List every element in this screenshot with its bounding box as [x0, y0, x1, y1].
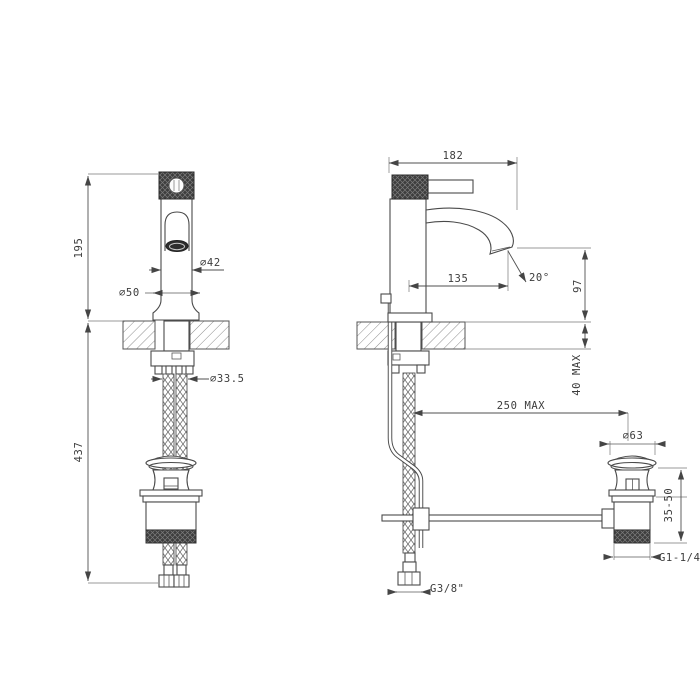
dim-height-above-deck: 195 [73, 238, 85, 259]
side-handle-lever [428, 180, 473, 193]
dim-spout-reach: 135 [448, 273, 469, 285]
dim-body-diameter: ∅42 [200, 257, 221, 269]
front-dimension-labels: 195 437 ∅42 ∅50 ∅33.5 [73, 238, 245, 463]
dim-hole-diameter: ∅33.5 [210, 373, 245, 385]
front-view: 195 437 ∅42 ∅50 ∅33.5 [73, 172, 245, 587]
technical-drawing: 195 437 ∅42 ∅50 ∅33.5 [0, 0, 700, 700]
dim-drain-height-range: 35-50 [663, 488, 675, 523]
side-faucet-body [381, 175, 513, 322]
spout [426, 208, 513, 254]
side-shank [396, 322, 421, 351]
side-popup-waste [602, 456, 656, 543]
dim-total-depth: 182 [443, 150, 464, 162]
side-knurled-cap [392, 175, 428, 199]
dim-deck-thickness: 40 MAX [571, 354, 583, 396]
dim-spout-angle: 20° [529, 272, 550, 284]
side-supply-hose [398, 373, 420, 585]
dim-supply-thread: G3/8" [430, 583, 465, 595]
front-mounting-nut [151, 351, 194, 374]
front-faucet-body [153, 172, 199, 320]
dim-drain-cap-diameter: ∅63 [623, 430, 644, 442]
dim-height-below-deck: 437 [73, 442, 85, 463]
dim-drain-distance: 250 MAX [497, 400, 546, 412]
dim-spout-height: 97 [572, 279, 584, 293]
dim-base-diameter: ∅50 [119, 287, 140, 299]
cap-screw [169, 178, 184, 193]
dim-drain-thread: G1-1/4" [659, 552, 700, 564]
side-mounting-nut [388, 351, 429, 373]
drawing-canvas: 195 437 ∅42 ∅50 ∅33.5 [0, 0, 700, 700]
side-view: 182 135 20° 97 40 MAX 250 MAX ∅63 35-50 … [357, 150, 700, 595]
front-shank [164, 321, 189, 351]
